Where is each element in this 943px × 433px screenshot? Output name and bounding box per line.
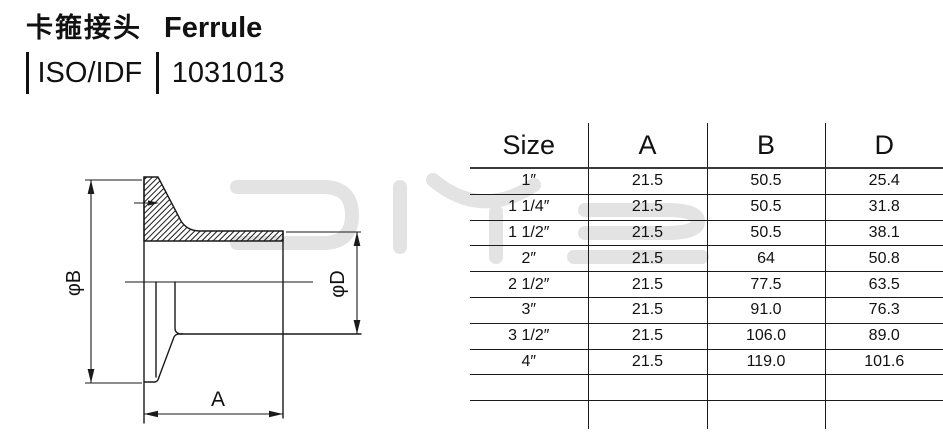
table-cell: 25.4	[825, 168, 943, 194]
table-cell: 50.5	[707, 220, 825, 246]
size-cell: 3 1/2″	[470, 323, 588, 349]
table-cell: 119.0	[707, 349, 825, 375]
dim-d	[286, 232, 361, 334]
size-cell: 3″	[470, 297, 588, 323]
table-row: 1 1/4″ 21.5 50.5 31.8	[470, 194, 943, 220]
dimension-table: Size A B D 1″ 21.5 50.5 25.4 1 1/4″ 21.5…	[470, 123, 943, 429]
size-cell: 1 1/2″	[470, 220, 588, 246]
table-cell: 21.5	[588, 220, 707, 246]
divider-bar	[26, 52, 29, 94]
table-row-empty	[470, 375, 943, 401]
table-cell: 31.8	[825, 194, 943, 220]
table-cell: 21.5	[588, 272, 707, 298]
table-row: 3″ 21.5 91.0 76.3	[470, 297, 943, 323]
table-cell: 50.8	[825, 246, 943, 272]
table-cell: 21.5	[588, 323, 707, 349]
table-cell	[588, 375, 707, 401]
size-cell: 4″	[470, 349, 588, 375]
table-cell: 64	[707, 246, 825, 272]
table-cell: 21.5	[588, 349, 707, 375]
part-number: 1031013	[172, 57, 285, 90]
table-row: 3 1/2″ 21.5 106.0 89.0	[470, 323, 943, 349]
standard-row: ISO/IDF 1031013	[26, 52, 285, 94]
table-cell	[470, 401, 588, 430]
table-row: 1″ 21.5 50.5 25.4	[470, 168, 943, 194]
table-cell	[707, 375, 825, 401]
arrow-up-icon	[354, 232, 361, 246]
table-cell: 21.5	[588, 168, 707, 194]
table-cell	[825, 375, 943, 401]
table-row-empty	[470, 401, 943, 430]
size-cell: 2 1/2″	[470, 272, 588, 298]
size-cell: 1″	[470, 168, 588, 194]
table-cell: 101.6	[825, 349, 943, 375]
divider-bar	[156, 52, 159, 94]
dim-a-label: A	[211, 388, 225, 411]
table-cell	[470, 375, 588, 401]
column-header-size: Size	[470, 123, 588, 168]
table-row: 2″ 21.5 64 50.8	[470, 246, 943, 272]
size-cell: 2″	[470, 246, 588, 272]
page-title-cn: 卡箍接头	[26, 6, 142, 45]
title-row: 卡箍接头 Ferrule	[26, 6, 285, 45]
table-cell: 50.5	[707, 194, 825, 220]
column-header-a: A	[588, 123, 707, 168]
table-cell: 76.3	[825, 297, 943, 323]
table-cell: 63.5	[825, 272, 943, 298]
spec-sheet-page: 卡箍接头 Ferrule ISO/IDF 1031013	[0, 0, 943, 433]
table-cell: 106.0	[707, 323, 825, 349]
table-cell: 89.0	[825, 323, 943, 349]
table-cell: 21.5	[588, 194, 707, 220]
table-cell: 77.5	[707, 272, 825, 298]
table-cell	[825, 401, 943, 430]
table-cell: 38.1	[825, 220, 943, 246]
page-title-en: Ferrule	[164, 12, 262, 45]
title-block: 卡箍接头 Ferrule ISO/IDF 1031013	[26, 6, 285, 94]
table-row: 1 1/2″ 21.5 50.5 38.1	[470, 220, 943, 246]
table-row: 2 1/2″ 21.5 77.5 63.5	[470, 272, 943, 298]
size-cell: 1 1/4″	[470, 194, 588, 220]
table-cell: 21.5	[588, 246, 707, 272]
arrow-down-icon	[88, 369, 95, 383]
table-header-row: Size A B D	[470, 123, 943, 168]
dim-b-label: φB	[63, 270, 85, 296]
table-cell	[588, 401, 707, 430]
standard-label: ISO/IDF	[38, 57, 143, 90]
ferrule-cross-section	[144, 177, 283, 241]
arrow-up-icon	[88, 180, 95, 194]
table-cell	[707, 401, 825, 430]
column-header-b: B	[707, 123, 825, 168]
arrow-right-icon	[269, 411, 283, 418]
column-header-d: D	[825, 123, 943, 168]
arrow-down-icon	[354, 320, 361, 334]
table-cell: 50.5	[707, 168, 825, 194]
table-row: 4″ 21.5 119.0 101.6	[470, 349, 943, 375]
table-cell: 21.5	[588, 297, 707, 323]
table-cell: 91.0	[707, 297, 825, 323]
dim-d-label: φD	[327, 270, 349, 297]
arrow-left-icon	[144, 411, 158, 418]
